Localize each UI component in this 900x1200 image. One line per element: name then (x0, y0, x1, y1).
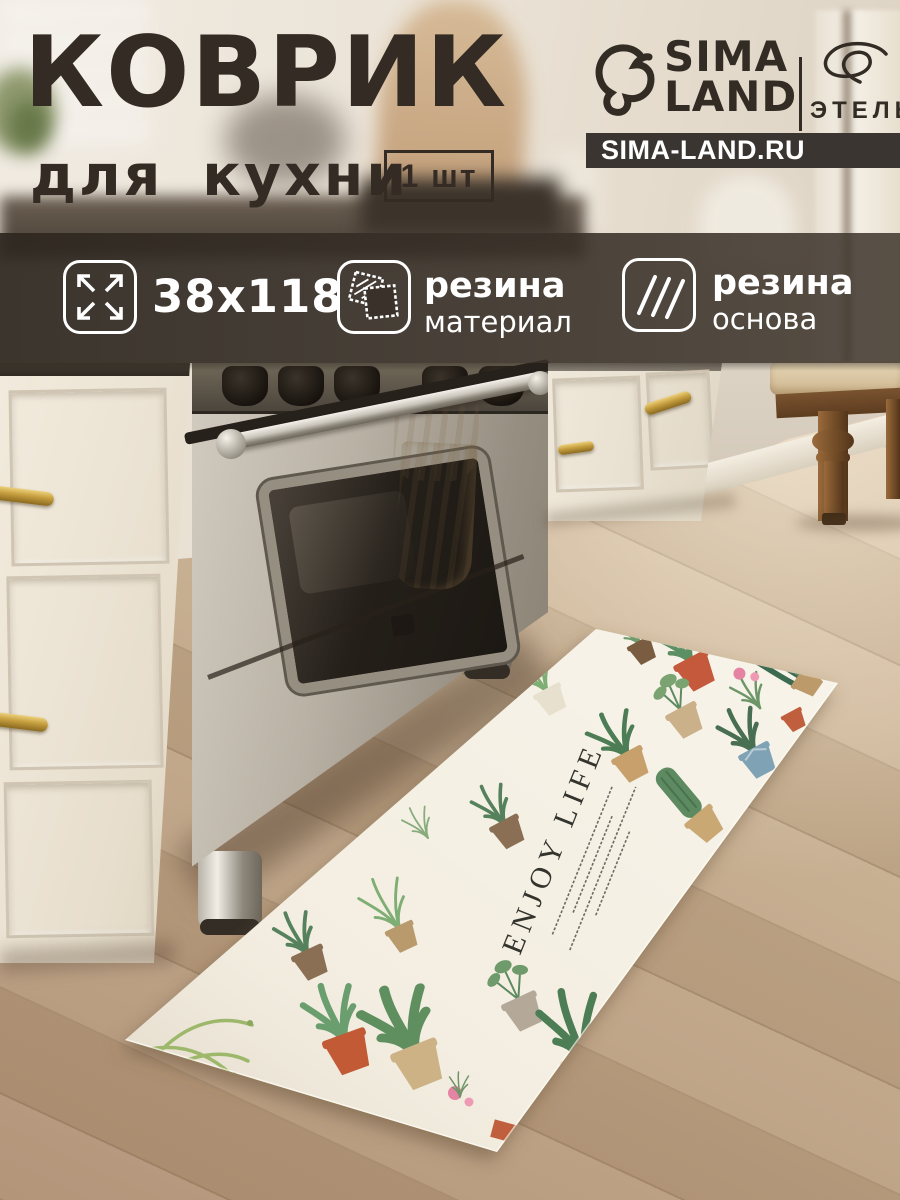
feature-material-title: резина (424, 266, 565, 306)
page-title: КОВРИК (24, 24, 508, 122)
brand-divider (799, 57, 802, 131)
dolphin-logo-icon (594, 40, 660, 126)
quantity-badge: 1 шт (384, 150, 494, 202)
brand-name-line2: LAND (664, 77, 797, 117)
expand-arrows-icon (63, 260, 137, 334)
feature-material-subtitle: материал (424, 305, 572, 339)
website-label: SIMA-LAND.RU (601, 135, 805, 166)
kitchen-mat: ENJOY LIFE (0, 363, 900, 1200)
product-card: ENJOY LIFE 38x118 (0, 0, 900, 1200)
page-subtitle: для кухни (30, 143, 409, 209)
sub-brand-label: ЭТЕЛЬ (810, 97, 900, 125)
feature-base-subtitle: основа (712, 302, 817, 336)
feature-size-value: 38x118 (152, 270, 344, 323)
hatch-lines-icon (622, 258, 696, 332)
kitchen-photo: ENJOY LIFE (0, 363, 900, 1200)
quantity-badge-label: 1 шт (400, 158, 477, 195)
features-banner: 38x118 резина материал (0, 233, 900, 363)
feature-base-title: резина (712, 263, 853, 303)
fabric-swatch-icon (337, 260, 411, 334)
brand-name-line1: SIMA (664, 37, 797, 77)
brand-name: SIMA LAND (664, 37, 797, 117)
website-bar: SIMA-LAND.RU (586, 133, 900, 168)
script-signature-icon (810, 38, 894, 96)
